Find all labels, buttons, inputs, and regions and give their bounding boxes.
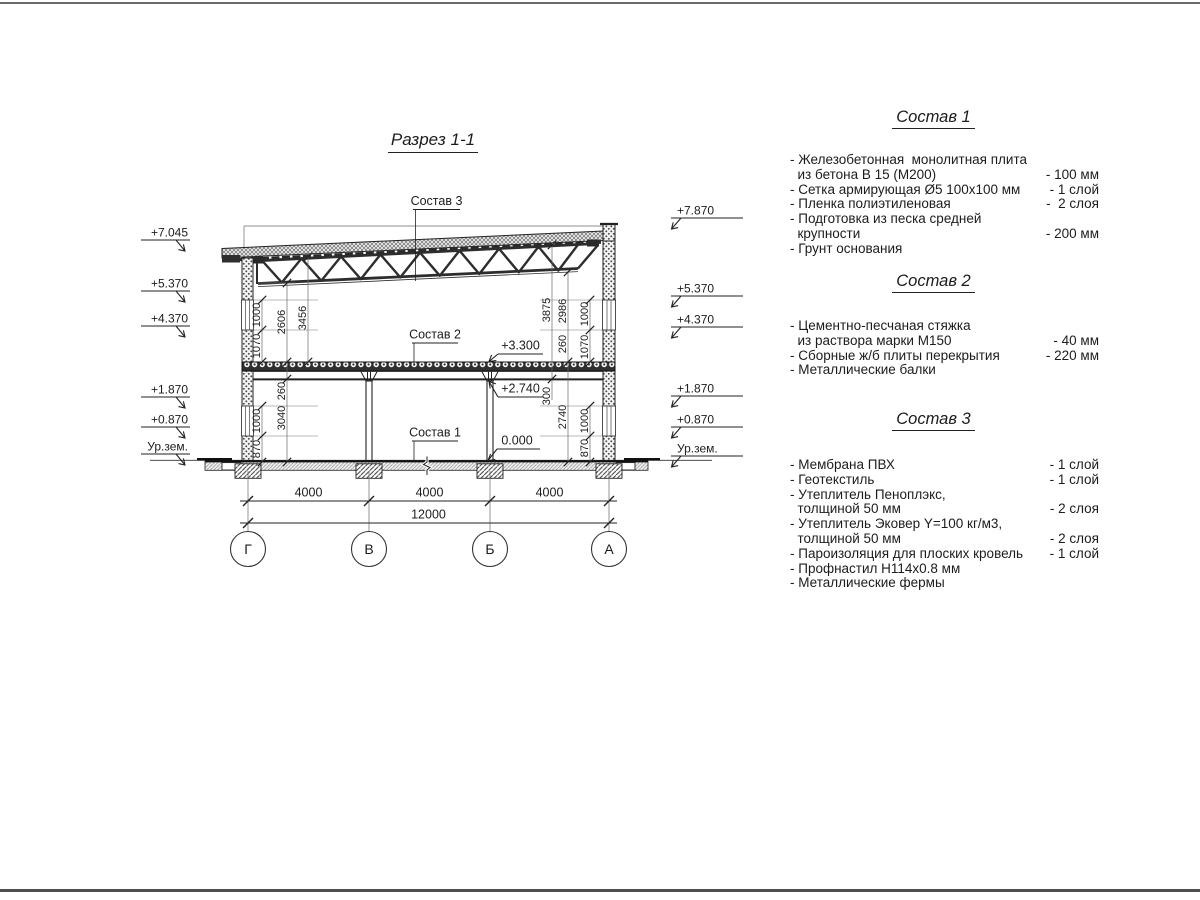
dimension-line-bays: 4000 4000 4000	[240, 486, 617, 507]
level-label-2740: +2.740	[489, 382, 543, 398]
spec-line: - Металлические балки	[790, 363, 1099, 378]
spec-block-1: Состав 1 - Железобетонная монолитная пли…	[790, 107, 1099, 257]
svg-text:+4.370: +4.370	[151, 312, 188, 326]
vdim: 260	[557, 335, 569, 353]
elevation-marker: +0.870	[141, 413, 190, 439]
spec-line: - Пленка полиэтиленовая- 2 слоя	[790, 197, 1099, 212]
vdim: 3040	[276, 406, 288, 430]
spec-line: - Цементно-песчаная стяжка	[790, 319, 1099, 334]
vdim: 3456	[297, 306, 309, 330]
floor-slab	[242, 362, 615, 379]
spec-line: - Сетка армирующая Ø5 100х100 мм- 1 слой	[790, 183, 1099, 198]
svg-text:+2.740: +2.740	[501, 382, 540, 396]
vdim: 1070	[579, 335, 591, 359]
svg-text:+3.300: +3.300	[501, 339, 540, 353]
spec-line: - Железобетонная монолитная плита	[790, 153, 1099, 168]
spec-line: из раствора марки М150- 40 мм	[790, 334, 1099, 349]
elevation-markers-right: +7.870 +5.370 +4.370 +1.870 +0.870 Ур.зе…	[671, 204, 743, 468]
spec-line: - Металлические фермы	[790, 576, 1099, 591]
vdim: 870	[579, 439, 591, 457]
elevation-marker-ground: Ур.зем.	[671, 442, 743, 468]
vdim: 260	[276, 382, 288, 400]
vdim: 870	[251, 440, 263, 458]
svg-text:Ур.зем.: Ур.зем.	[147, 440, 188, 454]
leader-sostav-1: Состав 1	[409, 426, 461, 461]
level-label-3300: +3.300	[489, 339, 543, 362]
spec-line: - Геотекстиль- 1 слой	[790, 473, 1099, 488]
roof-fascia	[222, 255, 240, 263]
vdim: 2606	[276, 310, 288, 334]
ground-floor	[150, 457, 712, 476]
vertical-dim-labels-left: 1000 1070 2606 3456 260 3040 1000 870	[251, 303, 309, 458]
spec-block-3: Состав 3 - Мембрана ПВХ- 1 слой - Геотек…	[790, 409, 1099, 591]
axis-bubble-v: В	[364, 541, 373, 557]
elevation-marker: +7.870	[671, 204, 743, 230]
drawing-sheet: { "title": "Разрез 1-1", "colors": { "ba…	[0, 0, 1200, 900]
spec-line: - Грунт основания	[790, 242, 1099, 257]
svg-text:+5.370: +5.370	[151, 277, 188, 291]
svg-text:+7.045: +7.045	[151, 226, 188, 240]
vertical-dim-labels-right: 3875 2986 1000 260 1070 300 2740 1000 87…	[541, 298, 591, 457]
spec-line: - Пароизоляция для плоских кровель- 1 сл…	[790, 547, 1099, 562]
vdim: 2740	[557, 405, 569, 429]
spec-line: - Мембрана ПВХ- 1 слой	[790, 458, 1099, 473]
svg-text:+5.370: +5.370	[677, 282, 714, 296]
window-right-lower	[603, 406, 616, 436]
section-drawing: 4000 4000 4000 12000 Г В Б А +7.045 +5	[0, 0, 780, 600]
svg-text:+0.870: +0.870	[677, 413, 714, 427]
dimension-line-total: 12000	[240, 508, 617, 529]
spec-heading: Состав 1	[790, 107, 1077, 129]
spec-line: крупности- 200 мм	[790, 227, 1099, 242]
svg-text:0.000: 0.000	[501, 434, 532, 448]
elevation-marker: +0.870	[671, 413, 743, 439]
elevation-marker: +7.045	[141, 226, 190, 252]
axis-bubbles: Г В Б А	[231, 532, 627, 567]
svg-text:+1.870: +1.870	[677, 382, 714, 396]
truss-bearing-right	[587, 240, 599, 247]
elevation-marker: +5.370	[141, 277, 190, 303]
spec-rows: - Цементно-песчаная стяжка из раствора м…	[790, 319, 1099, 378]
spec-line: - Подготовка из песка средней	[790, 212, 1099, 227]
spec-line: из бетона В 15 (М200)- 100 мм	[790, 168, 1099, 183]
column-axis-v	[361, 372, 377, 462]
elevation-marker: +1.870	[671, 382, 743, 408]
dim-bay-2: 4000	[416, 486, 444, 500]
elevation-marker: +1.870	[141, 383, 190, 409]
axis-bubble-a: А	[604, 541, 614, 557]
svg-text:Состав 2: Состав 2	[409, 328, 461, 342]
spec-line: - Утеплитель Пеноплэкс,	[790, 488, 1099, 503]
vdim: 1000	[579, 409, 591, 433]
vdim: 1000	[251, 409, 263, 433]
svg-text:+4.370: +4.370	[677, 313, 714, 327]
vdim: 3875	[541, 298, 553, 322]
spec-line: толщиной 50 мм- 2 слоя	[790, 502, 1099, 517]
elevation-marker: +4.370	[671, 313, 743, 339]
vdim: 1000	[251, 303, 263, 327]
axis-bubble-g: Г	[244, 541, 252, 557]
level-label-0000: 0.000	[488, 434, 540, 461]
vdim: 1070	[251, 334, 263, 358]
dim-bay-3: 4000	[536, 486, 564, 500]
svg-text:Состав 1: Состав 1	[409, 426, 461, 440]
svg-text:Состав 3: Состав 3	[411, 194, 463, 208]
window-right-upper	[603, 300, 616, 330]
spec-line: толщиной 50 мм- 2 слоя	[790, 532, 1099, 547]
elevation-marker: +4.370	[141, 312, 190, 338]
spec-heading: Состав 3	[790, 409, 1077, 431]
vdim: 1000	[579, 302, 591, 326]
leader-sostav-2: Состав 2	[409, 328, 461, 367]
elevation-marker: +5.370	[671, 282, 743, 308]
elevation-markers-left: +7.045 +5.370 +4.370 +1.870 +0.870 Ур.зе…	[141, 226, 190, 466]
spec-rows: - Мембрана ПВХ- 1 слой - Геотекстиль- 1 …	[790, 458, 1099, 591]
dim-bay-1: 4000	[295, 486, 323, 500]
vdim: 300	[541, 387, 553, 405]
spec-line: - Сборные ж/б плиты перекрытия- 220 мм	[790, 349, 1099, 364]
svg-text:Ур.зем.: Ур.зем.	[677, 442, 718, 456]
spec-block-2: Состав 2 - Цементно-песчаная стяжка из р…	[790, 271, 1099, 378]
svg-text:+7.870: +7.870	[677, 204, 714, 218]
elevation-marker-ground: Ур.зем.	[141, 440, 190, 466]
vdim: 2986	[557, 299, 569, 323]
dim-total: 12000	[411, 508, 446, 522]
spec-line: - Профнастил Н114х0.8 мм	[790, 562, 1099, 577]
svg-text:+1.870: +1.870	[151, 383, 188, 397]
spec-line: - Утеплитель Эковер Y=100 кг/м3,	[790, 517, 1099, 532]
axis-bubble-b: Б	[485, 541, 494, 557]
wall-right	[603, 241, 616, 462]
svg-text:+0.870: +0.870	[151, 413, 188, 427]
spec-rows: - Железобетонная монолитная плита из бет…	[790, 153, 1099, 257]
spec-heading: Состав 2	[790, 271, 1077, 293]
page-bottom-rule	[0, 889, 1200, 892]
truss-bottom-chord	[258, 269, 578, 284]
parapet	[600, 224, 618, 242]
